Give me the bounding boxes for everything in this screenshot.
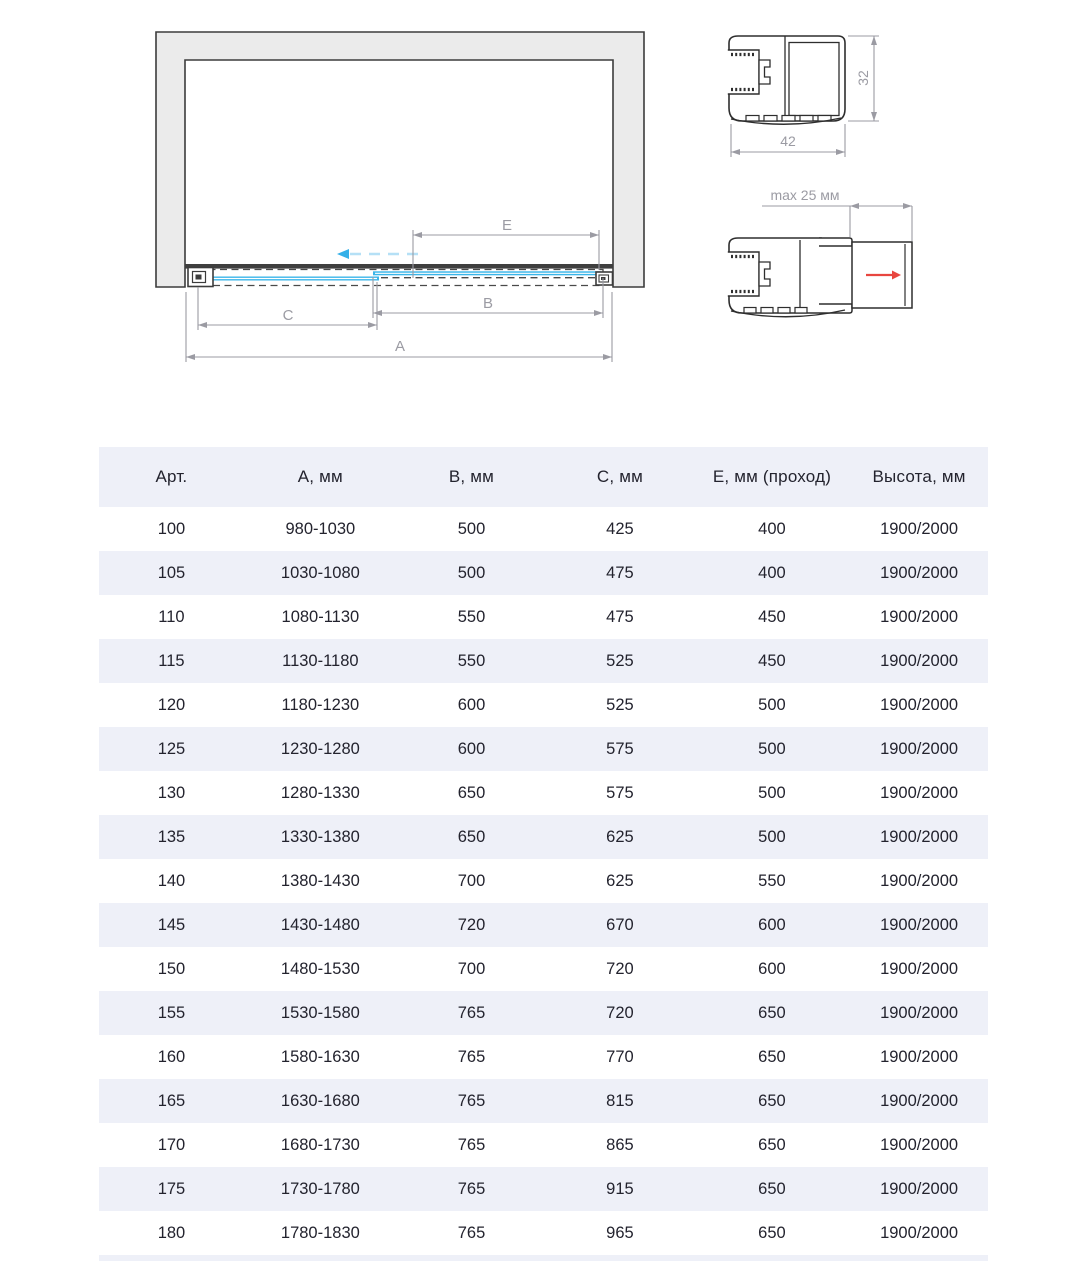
- table-cell: 120: [99, 683, 244, 727]
- table-row: 1051030-10805004754001900/2000: [99, 551, 988, 595]
- table-cell: 650: [397, 815, 546, 859]
- table-cell: 1430-1480: [244, 903, 397, 947]
- table-cell: 400: [694, 507, 850, 551]
- table-cell: 1530-1580: [244, 991, 397, 1035]
- table-cell: 170: [99, 1123, 244, 1167]
- table-cell: 1680-1730: [244, 1123, 397, 1167]
- table-cell: 500: [694, 683, 850, 727]
- niche-walls: [156, 32, 644, 287]
- table-cell: 1730-1780: [244, 1167, 397, 1211]
- table-row: 1201180-12306005255001900/2000: [99, 683, 988, 727]
- table-cell: 865: [546, 1123, 694, 1167]
- table-cell: 500: [397, 551, 546, 595]
- table-cell: 450: [694, 639, 850, 683]
- table-row: 1501480-15307007206001900/2000: [99, 947, 988, 991]
- table-cell: 125: [99, 727, 244, 771]
- col-header-a: А, мм: [244, 447, 397, 507]
- table-row: 1551530-15807657206501900/2000: [99, 991, 988, 1035]
- table-row: 1351330-13806506255001900/2000: [99, 815, 988, 859]
- table-row: 1701680-17307658656501900/2000: [99, 1123, 988, 1167]
- table-cell: 1900/2000: [850, 595, 988, 639]
- profile-sections-diagram: 32 42: [700, 20, 940, 340]
- dimension-e: [413, 230, 599, 278]
- table-cell: 965: [546, 1211, 694, 1255]
- table-cell: 1080-1130: [244, 595, 397, 639]
- table-cell: 1900/2000: [850, 551, 988, 595]
- table-cell: 720: [546, 991, 694, 1035]
- table-cell: 575: [546, 771, 694, 815]
- table-cell: 650: [694, 1211, 850, 1255]
- table-cell: 765: [397, 1167, 546, 1211]
- sliding-glass-panel: [373, 271, 601, 275]
- table-cell: 175: [99, 1167, 244, 1211]
- table-cell: 450: [694, 595, 850, 639]
- table-cell: 425: [546, 507, 694, 551]
- table-cell: 180: [99, 1211, 244, 1255]
- table-row: 1601580-16307657706501900/2000: [99, 1035, 988, 1079]
- col-header-art: Арт.: [99, 447, 244, 507]
- size-table-section: Арт. А, мм В, мм С, мм Е, мм (проход) Вы…: [99, 447, 988, 1261]
- table-cell: 650: [694, 1123, 850, 1167]
- table-cell: 1900/2000: [850, 507, 988, 551]
- table-row: 1251230-12806005755001900/2000: [99, 727, 988, 771]
- table-cell: 1130-1180: [244, 639, 397, 683]
- table-cell: 115: [99, 639, 244, 683]
- table-cell: 1480-1530: [244, 947, 397, 991]
- table-cell: 1900/2000: [850, 1035, 988, 1079]
- plan-view-diagram: E B C A: [140, 20, 660, 380]
- table-cell: 1380-1430: [244, 859, 397, 903]
- table-cell: 165: [99, 1079, 244, 1123]
- table-cell: 525: [546, 639, 694, 683]
- table-row: 1751730-17807659156501900/2000: [99, 1167, 988, 1211]
- table-row: 1451430-14807206706001900/2000: [99, 903, 988, 947]
- table-row: 1301280-13306505755001900/2000: [99, 771, 988, 815]
- size-table-body: 100980-10305004254001900/20001051030-108…: [99, 507, 988, 1255]
- dimension-b-label: B: [483, 295, 493, 312]
- col-header-c: С, мм: [546, 447, 694, 507]
- table-cell: 765: [397, 1211, 546, 1255]
- table-cell: 100: [99, 507, 244, 551]
- table-cell: 720: [397, 903, 546, 947]
- table-cutoff-row: [99, 1255, 988, 1261]
- table-cell: 765: [397, 1123, 546, 1167]
- table-cell: 600: [397, 727, 546, 771]
- table-cell: 1230-1280: [244, 727, 397, 771]
- table-cell: 150: [99, 947, 244, 991]
- dimension-a-label: A: [395, 338, 405, 355]
- table-cell: 1030-1080: [244, 551, 397, 595]
- size-table-header-row: Арт. А, мм В, мм С, мм Е, мм (проход) Вы…: [99, 447, 988, 507]
- table-cell: 1900/2000: [850, 1123, 988, 1167]
- table-cell: 600: [694, 947, 850, 991]
- table-cell: 625: [546, 859, 694, 903]
- table-cell: 765: [397, 1079, 546, 1123]
- adjustment-dimension: [762, 206, 912, 241]
- table-cell: 475: [546, 551, 694, 595]
- table-cell: 575: [546, 727, 694, 771]
- right-roller-bracket: [596, 272, 613, 285]
- adjustment-label: max 25 мм: [770, 187, 839, 203]
- table-cell: 650: [694, 1167, 850, 1211]
- table-cell: 700: [397, 859, 546, 903]
- table-cell: 1900/2000: [850, 1167, 988, 1211]
- col-header-e: Е, мм (проход): [694, 447, 850, 507]
- table-cell: 140: [99, 859, 244, 903]
- table-cell: 500: [694, 727, 850, 771]
- table-cell: 500: [694, 815, 850, 859]
- table-cell: 160: [99, 1035, 244, 1079]
- table-cell: 550: [397, 595, 546, 639]
- table-cell: 650: [694, 991, 850, 1035]
- profile-height-label: 32: [855, 70, 871, 86]
- table-cell: 720: [546, 947, 694, 991]
- table-cell: 625: [546, 815, 694, 859]
- table-cell: 1900/2000: [850, 991, 988, 1035]
- table-cell: 1900/2000: [850, 683, 988, 727]
- size-table: Арт. А, мм В, мм С, мм Е, мм (проход) Вы…: [99, 447, 988, 1255]
- col-header-height: Высота, мм: [850, 447, 988, 507]
- table-cell: 1900/2000: [850, 903, 988, 947]
- fixed-glass-panel: [197, 277, 379, 281]
- table-cell: 815: [546, 1079, 694, 1123]
- table-cell: 1630-1680: [244, 1079, 397, 1123]
- table-cell: 1780-1830: [244, 1211, 397, 1255]
- wall-profile-section: [728, 36, 845, 124]
- col-header-b: В, мм: [397, 447, 546, 507]
- table-cell: 915: [546, 1167, 694, 1211]
- table-row: 100980-10305004254001900/2000: [99, 507, 988, 551]
- table-cell: 1900/2000: [850, 771, 988, 815]
- table-cell: 1900/2000: [850, 727, 988, 771]
- table-row: 1651630-16807658156501900/2000: [99, 1079, 988, 1123]
- table-cell: 525: [546, 683, 694, 727]
- table-cell: 600: [694, 903, 850, 947]
- table-cell: 650: [694, 1079, 850, 1123]
- table-cell: 550: [397, 639, 546, 683]
- table-cell: 1330-1380: [244, 815, 397, 859]
- table-row: 1151130-11805505254501900/2000: [99, 639, 988, 683]
- table-cell: 1900/2000: [850, 639, 988, 683]
- table-cell: 110: [99, 595, 244, 639]
- table-cell: 770: [546, 1035, 694, 1079]
- table-cell: 1900/2000: [850, 1079, 988, 1123]
- table-cell: 600: [397, 683, 546, 727]
- table-cell: 700: [397, 947, 546, 991]
- table-cell: 765: [397, 991, 546, 1035]
- table-cell: 500: [397, 507, 546, 551]
- table-cell: 1900/2000: [850, 1211, 988, 1255]
- table-cell: 155: [99, 991, 244, 1035]
- table-cell: 105: [99, 551, 244, 595]
- table-cell: 1280-1330: [244, 771, 397, 815]
- adjustable-profile-section: [728, 238, 912, 317]
- table-cell: 475: [546, 595, 694, 639]
- table-row: 1101080-11305504754501900/2000: [99, 595, 988, 639]
- profile-width-label: 42: [780, 133, 796, 149]
- table-cell: 650: [397, 771, 546, 815]
- dimension-c-label: C: [283, 307, 294, 324]
- table-row: 1801780-18307659656501900/2000: [99, 1211, 988, 1255]
- table-cell: 135: [99, 815, 244, 859]
- table-cell: 765: [397, 1035, 546, 1079]
- slide-direction-arrow: [337, 249, 424, 259]
- table-cell: 1900/2000: [850, 815, 988, 859]
- table-cell: 145: [99, 903, 244, 947]
- table-cell: 400: [694, 551, 850, 595]
- table-cell: 980-1030: [244, 507, 397, 551]
- table-cell: 130: [99, 771, 244, 815]
- door-track: [185, 264, 613, 269]
- left-roller-bracket: [188, 268, 213, 287]
- table-row: 1401380-14307006255501900/2000: [99, 859, 988, 903]
- table-cell: 500: [694, 771, 850, 815]
- table-cell: 1900/2000: [850, 947, 988, 991]
- table-cell: 650: [694, 1035, 850, 1079]
- table-cell: 1580-1630: [244, 1035, 397, 1079]
- table-cell: 550: [694, 859, 850, 903]
- table-cell: 1900/2000: [850, 859, 988, 903]
- table-cell: 1180-1230: [244, 683, 397, 727]
- dimension-e-label: E: [502, 217, 512, 234]
- table-cell: 670: [546, 903, 694, 947]
